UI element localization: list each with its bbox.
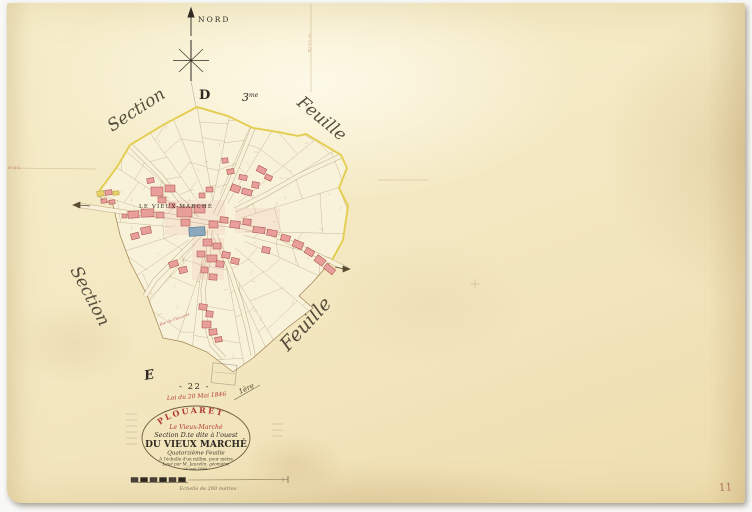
scale-block xyxy=(179,478,186,482)
building xyxy=(158,197,166,203)
cartouche-date-line: 20 mai 1846. xyxy=(183,466,208,471)
building xyxy=(199,193,205,198)
building xyxy=(209,329,217,336)
page-number: 11 xyxy=(719,481,733,494)
script-section-bottom-left: Section xyxy=(66,263,114,330)
parcel-mark xyxy=(88,191,89,196)
parcel-mark xyxy=(122,308,123,311)
building xyxy=(220,217,228,224)
scale-block xyxy=(131,478,138,482)
building xyxy=(207,255,217,262)
map-svg: NORD D 3me Section Feuille Section Feuil… xyxy=(0,0,752,512)
building xyxy=(209,274,217,280)
cartouche-commune: Le Vieux-Marché xyxy=(168,424,223,431)
building xyxy=(222,251,231,258)
scale-line xyxy=(188,480,288,481)
west-arrow-icon xyxy=(73,202,80,208)
building xyxy=(97,191,104,197)
village-label: LE VIEUX-MARCHÉ xyxy=(139,202,213,210)
pencil-cross xyxy=(470,279,480,289)
building xyxy=(105,190,112,196)
parcel-mark xyxy=(86,262,88,265)
building xyxy=(128,211,139,219)
north-arrow xyxy=(188,8,194,36)
building xyxy=(113,191,119,196)
sheet-number: 3me xyxy=(242,91,259,104)
pencil-sketch-line xyxy=(214,372,236,374)
scale-bar xyxy=(131,476,288,483)
building xyxy=(222,158,228,164)
parcel-mark xyxy=(123,265,125,269)
parcel-mark xyxy=(118,259,119,263)
building xyxy=(230,221,241,229)
parcel-line xyxy=(171,355,191,359)
building xyxy=(252,181,260,188)
parcel-mark xyxy=(124,131,126,133)
building xyxy=(197,251,205,257)
church-building xyxy=(189,227,205,237)
cartouche-title: DU VIEUX MARCHÉ xyxy=(145,438,247,450)
building xyxy=(156,212,164,218)
parcel-mark xyxy=(162,119,165,123)
building xyxy=(216,261,224,268)
scale-block xyxy=(169,478,176,482)
scale-block xyxy=(160,478,167,482)
building xyxy=(201,267,208,273)
building xyxy=(261,246,270,254)
building xyxy=(206,311,213,318)
building xyxy=(181,219,190,226)
building xyxy=(243,219,251,226)
parcel-mark xyxy=(145,125,149,126)
parcel-line xyxy=(262,100,279,118)
parcel-mark xyxy=(348,212,353,213)
building xyxy=(227,169,235,175)
parcel-line xyxy=(78,155,97,188)
margin-annotation-left: N° 4 G. xyxy=(8,166,21,170)
building xyxy=(253,226,266,233)
scale-block xyxy=(141,478,148,482)
cartouche-section-line: Section D.te dite à l'ouest xyxy=(154,431,238,439)
building xyxy=(202,321,211,328)
building xyxy=(165,185,175,192)
parcel-line xyxy=(89,220,94,262)
building xyxy=(151,187,163,196)
building xyxy=(199,303,208,310)
north-label: NORD xyxy=(198,15,230,24)
sheet-number-note: - 22 - xyxy=(179,382,210,392)
building xyxy=(122,214,127,218)
scale-block xyxy=(150,478,157,482)
parcel-mark xyxy=(122,265,125,267)
paraph-note: 1ère xyxy=(237,382,255,396)
scale-label: Echelle de 200 mètres xyxy=(179,485,237,492)
section-letter: D xyxy=(199,88,210,103)
parcel-line xyxy=(347,234,349,263)
building xyxy=(215,337,223,343)
loi-note: Loi du 20 Mai 1846 xyxy=(166,391,227,402)
building xyxy=(206,187,213,192)
parcel-line xyxy=(71,218,76,267)
building xyxy=(109,200,115,205)
building xyxy=(209,221,218,228)
scanned-map-page: NORD D 3me Section Feuille Section Feuil… xyxy=(0,0,752,512)
cartouche-feuille-line: Quatorzième Feuille xyxy=(167,450,225,457)
building xyxy=(141,209,154,217)
fold-crease-left xyxy=(8,168,96,169)
letter-e-note: E xyxy=(142,367,156,384)
building xyxy=(213,243,221,249)
margin-annotation-top: N° 3 V. Ch. xyxy=(307,34,311,53)
building xyxy=(147,177,155,183)
building xyxy=(101,199,107,204)
building xyxy=(203,239,212,246)
